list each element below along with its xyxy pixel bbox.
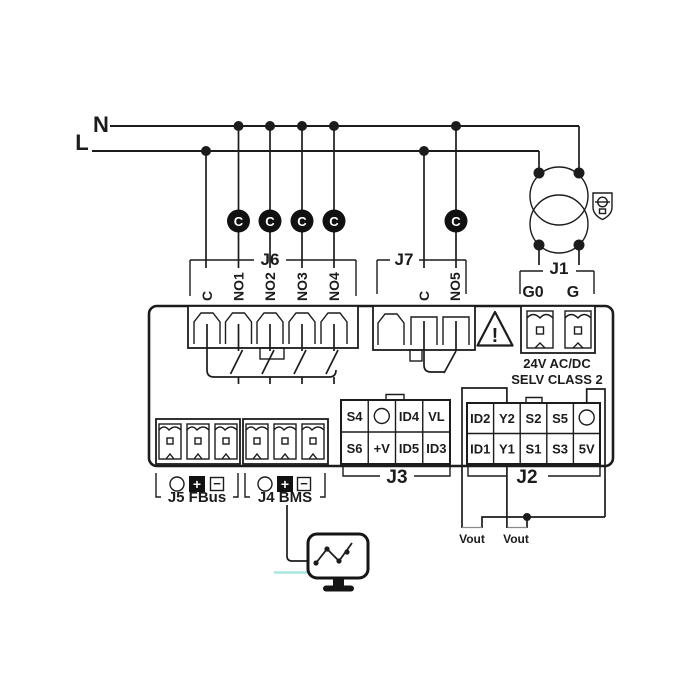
fuse-icon: C	[291, 210, 314, 233]
j6-terminal-label-no4: NO4	[326, 272, 342, 301]
fuse-icon: C	[227, 210, 250, 233]
j2-cell-s2: S2	[526, 411, 542, 426]
fuse-letter: C	[329, 214, 339, 229]
j3-cell-id4: ID4	[399, 409, 420, 424]
j1-connector	[521, 306, 595, 353]
j2-block: ID2 Y2 S2 S5 ID1 Y1 S1 S3 5V J2	[467, 398, 600, 489]
wire-supply-to-transformer	[539, 126, 579, 173]
fuse-icons: C C C C C	[227, 210, 468, 233]
j6-terminal-label-no2: NO2	[262, 272, 278, 301]
j6-terminal-label-c: C	[199, 291, 215, 301]
j5-label: J5 FBus	[168, 489, 226, 506]
j3-cell-vl: VL	[428, 409, 445, 424]
fuse-letter: C	[265, 214, 275, 229]
gnd-rail-junction	[523, 513, 531, 521]
j3-cell-s4: S4	[347, 409, 364, 424]
j7-header: J7 C NO5	[377, 250, 466, 301]
fuse-icon: C	[259, 210, 282, 233]
j3-block: S4 ID4 VL S6 +V ID5 ID3 J3	[341, 395, 450, 489]
monitor-base	[323, 586, 354, 592]
j2-cell-s1: S1	[526, 442, 542, 457]
j2-cell-s5: S5	[552, 411, 568, 426]
j7-label: J7	[395, 250, 414, 269]
power-rails: N L	[75, 112, 579, 268]
j4-label: J4 BMS	[258, 489, 312, 506]
wiring-diagram: N L C C C	[0, 0, 700, 700]
j5-footer: + − J5 FBus	[156, 473, 238, 506]
j7-terminal-labels: C NO5	[416, 272, 463, 301]
j3-label: J3	[386, 467, 407, 488]
fuse-letter: C	[234, 214, 244, 229]
warning-symbol: !	[492, 325, 499, 347]
j7-terminal-label-no5: NO5	[447, 272, 463, 301]
j3-cell-id5: ID5	[399, 441, 419, 456]
j6-header: J6 C NO1 NO2 NO3 NO4	[190, 250, 356, 301]
j2-cell-id1: ID1	[470, 442, 490, 457]
j3-cell-s6: S6	[347, 441, 363, 456]
j3-cell-plusv: +V	[374, 441, 391, 456]
j1-terminal-label-g0: G0	[522, 284, 543, 301]
fuse-icon: C	[445, 210, 468, 233]
j2-cell-y2: Y2	[499, 411, 515, 426]
fuse-shield-icon	[593, 193, 612, 220]
j6-terminal-label-no1: NO1	[231, 272, 247, 301]
j5-connector	[156, 419, 240, 464]
fuse-icon: C	[323, 210, 346, 233]
j6-terminal-label-no3: NO3	[294, 272, 310, 301]
j7-terminal-label-c: C	[416, 291, 432, 301]
j2-cell-s3: S3	[552, 442, 568, 457]
j3-cell-id3: ID3	[426, 441, 446, 456]
line-label: L	[75, 130, 88, 155]
j7-keying-tab	[410, 350, 422, 361]
j1-voltage-caption: 24V AC/DC	[523, 356, 591, 371]
j6-terminal-labels: C NO1 NO2 NO3 NO4	[199, 272, 342, 301]
vout1-label: Vout	[459, 532, 485, 546]
j6-label: J6	[261, 250, 280, 269]
j1-selv-caption: SELV CLASS 2	[511, 372, 603, 387]
vout2-label: Vout	[503, 532, 529, 546]
monitor-icon	[308, 534, 368, 592]
j2-cell-id2: ID2	[470, 411, 490, 426]
fuse-letter: C	[451, 214, 461, 229]
j2-cell-5v: 5V	[579, 442, 595, 457]
wire-bms-to-monitor	[287, 505, 307, 561]
wire-gnd-rail	[482, 517, 605, 528]
fuse-letter: C	[297, 214, 307, 229]
j1-label: J1	[550, 259, 569, 278]
neutral-label: N	[93, 112, 109, 137]
j2-label: J2	[516, 467, 537, 488]
j1-caption: 24V AC/DC SELV CLASS 2	[511, 356, 603, 387]
transformer-icon	[530, 167, 588, 265]
monitor-stand	[333, 578, 344, 586]
j4-footer: + − J4 BMS	[245, 473, 325, 506]
j2-cell-y1: Y1	[499, 442, 515, 457]
j1-terminal-label-g: G	[567, 284, 579, 301]
diagram-canvas: N L C C C	[0, 0, 700, 700]
warning-icon: !	[478, 312, 513, 347]
j1-header: J1 G0 G	[520, 259, 594, 301]
